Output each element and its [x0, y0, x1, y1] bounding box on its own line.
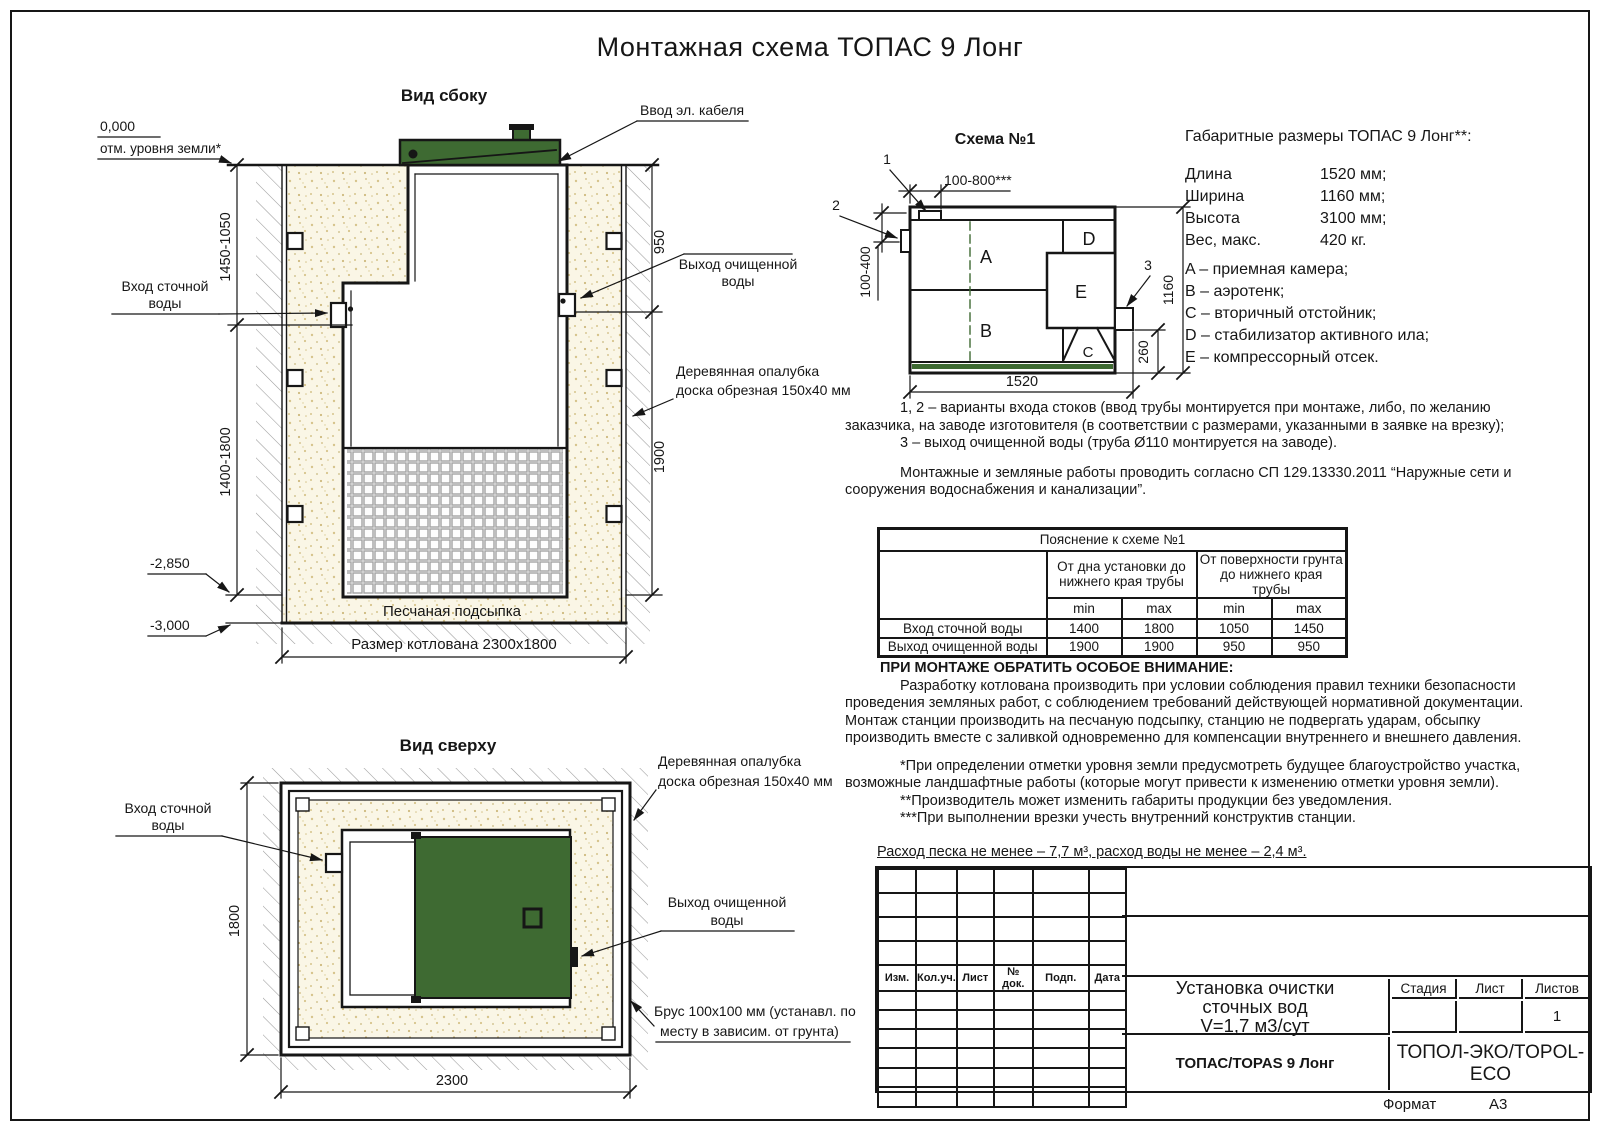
note-inlet-variants: 1, 2 – варианты входа стоков (ввод трубы… [845, 400, 1563, 435]
outlet-fitting-topview [570, 947, 578, 967]
page-title: Монтажная схема ТОПАС 9 Лонг [410, 32, 1210, 63]
dim-1400-1800: 1400-1800 [218, 427, 234, 496]
legend-item: E – компрессорный отсек. [1185, 347, 1555, 369]
zero-mark-label: 0,000 [100, 118, 135, 134]
dim-100-800: 100-800*** [944, 172, 1012, 188]
dim-950: 950 [652, 230, 668, 254]
inlet-label-2: воды [149, 295, 182, 311]
side-view-title: Вид сбоку [401, 86, 488, 105]
station-ribbed-base [347, 448, 563, 594]
outlet-label-2: воды [722, 273, 755, 289]
table-row: Выход очищенной воды 1900 1900 950 950 [879, 638, 1347, 657]
doc-title-line3: V=1,7 м3/сут [1176, 1016, 1335, 1035]
inlet-fitting [331, 303, 346, 327]
revision-grid: Изм. Кол.уч. Лист № док. Подп. Дата [877, 868, 1127, 1108]
cable-gland [409, 150, 418, 159]
note-sp-standard: Монтажные и земляные работы проводить со… [845, 465, 1563, 500]
format-label: Формат [1383, 1096, 1436, 1113]
top-view-title: Вид сверху [400, 736, 497, 755]
tv-beam-label-2: месту в зависим. от грунта) [660, 1023, 839, 1039]
spec-row: Вес, макс.420 кг. [1185, 230, 1555, 252]
schema-outlet-3 [1115, 308, 1133, 330]
tv-formwork-label-1: Деревянная опалубка [658, 753, 801, 769]
station-lid [400, 124, 560, 165]
cable-entry-label: Ввод эл. кабеля [640, 102, 744, 118]
sheet-value [1459, 1001, 1523, 1033]
company-name-cell: ТОПОЛ-ЭКО/TOPOL-ECO [1392, 1037, 1589, 1090]
tv-formwork-label-2: доска обрезная 150х40 мм [658, 773, 833, 789]
schema1-drawing: Схема №1 A B C D E 1 2 3 [832, 131, 1190, 398]
dim-1900: 1900 [652, 441, 668, 473]
earth-hatch-left [256, 165, 282, 623]
table-min-header: min [1047, 598, 1122, 619]
inlet-fitting-topview [326, 854, 342, 872]
footnote-3: ***При выполнении врезки учесть внутренн… [845, 810, 1565, 828]
dim-100-400: 100-400 [857, 246, 873, 298]
tv-inlet-label-1: Вход сточной [125, 800, 212, 816]
formwork-label-1: Деревянная опалубка [676, 363, 819, 379]
footnote-2: **Производитель может изменить габариты … [845, 793, 1565, 811]
table-row: Вход сточной воды 1400 1800 1050 1450 [879, 619, 1347, 638]
tv-beam-label-1: Брус 100х100 мм (устанавл. по [654, 1003, 856, 1019]
doc-title-cell: Установка очистки сточных вод V=1,7 м3/с… [1122, 979, 1390, 1035]
sheet-header: Лист [1459, 979, 1523, 999]
legend-item: A – приемная камера; [1185, 259, 1555, 281]
sheets-value: 1 [1525, 1001, 1589, 1033]
note-outlet: 3 – выход очищенной воды (труба Ø110 мон… [845, 435, 1563, 453]
callout-1: 1 [883, 151, 891, 167]
dimensions-title: Габаритные размеры ТОПАС 9 Лонг**: [1185, 126, 1555, 148]
letter-D: D [1083, 229, 1096, 249]
outlet-fitting [559, 294, 575, 316]
explanation-table: Пояснение к схеме №1 От дна установки до… [877, 527, 1348, 658]
letter-E: E [1075, 282, 1087, 302]
product-name-cell: ТОПАС/TOPAS 9 Лонг [1122, 1037, 1390, 1090]
station-lid-topview [415, 837, 571, 998]
side-view-drawing: 1450-1050 1400-1800 950 1900 0,000 отм. … [98, 86, 851, 663]
outlet-label-1: Выход очищенной [679, 256, 798, 272]
legend-item: D – стабилизатор активного ила; [1185, 325, 1555, 347]
tank-base-strip [912, 364, 1113, 369]
ground-mark-label: отм. уровня земли* [100, 141, 222, 156]
drawing-sheet: 1450-1050 1400-1800 950 1900 0,000 отм. … [0, 0, 1600, 1131]
consumption-note: Расход песка не менее – 7,7 м³, расход в… [877, 844, 1306, 860]
table-group1-header: От дна установки до нижнего края трубы [1047, 551, 1197, 598]
schema-inlet-1 [919, 211, 941, 220]
earth-hatch-right [626, 165, 650, 623]
letter-A: A [980, 247, 992, 267]
lid-vent [513, 129, 530, 140]
tv-outlet-label-2: воды [711, 912, 744, 928]
level-2850-label: -2,850 [150, 555, 190, 571]
dim-1800: 1800 [227, 905, 243, 937]
compartment-legend: A – приемная камера; B – аэротенк; C – в… [1185, 259, 1555, 369]
doc-title-line2: сточных вод [1176, 997, 1335, 1016]
sheets-header: Листов [1525, 979, 1589, 999]
level-3000-label: -3,000 [150, 617, 190, 633]
revision-header-row: Изм. Кол.уч. Лист № док. Подп. Дата [878, 965, 1126, 991]
inlet-label-1: Вход сточной [122, 278, 209, 294]
table-max-header: max [1122, 598, 1197, 619]
tv-inlet-label-2: воды [152, 817, 185, 833]
sand-bedding-label: Песчаная подсыпка [383, 603, 522, 620]
table-group2-header: От поверхности грунта до нижнего края тр… [1197, 551, 1347, 598]
tb-empty-mid [1122, 919, 1589, 977]
callout-2: 2 [832, 197, 840, 213]
legend-item: C – вторичный отстойник; [1185, 303, 1555, 325]
schema-title: Схема №1 [955, 131, 1036, 148]
dim-1520: 1520 [1006, 374, 1038, 390]
format-value: А3 [1489, 1096, 1507, 1113]
table-title: Пояснение к схеме №1 [879, 529, 1347, 551]
tv-outlet-label-1: Выход очищенной [668, 894, 787, 910]
pit-size-label: Размер котлована 2300х1800 [351, 636, 556, 653]
spec-row: Длина1520 мм; [1185, 164, 1555, 186]
dim-260: 260 [1135, 340, 1151, 364]
dimensions-block: Габаритные размеры ТОПАС 9 Лонг**: Длина… [1185, 126, 1555, 369]
letter-C: C [1083, 344, 1094, 361]
lid-vent-topview [524, 909, 541, 927]
attention-block: ПРИ МОНТАЖЕ ОБРАТИТЬ ОСОБОЕ ВНИМАНИЕ: Ра… [845, 660, 1565, 828]
callout-3: 3 [1144, 257, 1152, 273]
dim-1450-1050: 1450-1050 [218, 212, 234, 281]
top-view-drawing: 1800 2300 Вид сверху Вход сточной воды Д… [116, 736, 856, 1098]
dim-1160: 1160 [1160, 275, 1176, 305]
attention-title: ПРИ МОНТАЖЕ ОБРАТИТЬ ОСОБОЕ ВНИМАНИЕ: [845, 660, 1565, 678]
tb-empty-top [1122, 868, 1589, 917]
table-min-header: min [1197, 598, 1272, 619]
notes-block: 1, 2 – варианты входа стоков (ввод трубы… [845, 400, 1563, 500]
dim-2300: 2300 [436, 1073, 468, 1089]
formwork-label-2: доска обрезная 150х40 мм [676, 382, 851, 398]
schema-inlet-2 [901, 230, 910, 252]
doc-title-line1: Установка очистки [1176, 978, 1335, 997]
stage-value [1392, 1001, 1457, 1033]
letter-B: B [980, 321, 992, 341]
spec-row: Ширина1160 мм; [1185, 186, 1555, 208]
table-corner-cell [879, 551, 1047, 619]
title-block: Изм. Кол.уч. Лист № док. Подп. Дата Уста… [875, 866, 1592, 1093]
spec-row: Высота3100 мм; [1185, 208, 1555, 230]
footnote-1: *При определении отметки уровня земли пр… [845, 758, 1565, 793]
table-max-header: max [1272, 598, 1347, 619]
stage-header: Стадия [1392, 979, 1457, 999]
legend-item: B – аэротенк; [1185, 281, 1555, 303]
attention-text: Разработку котлована производить при усл… [845, 678, 1565, 748]
